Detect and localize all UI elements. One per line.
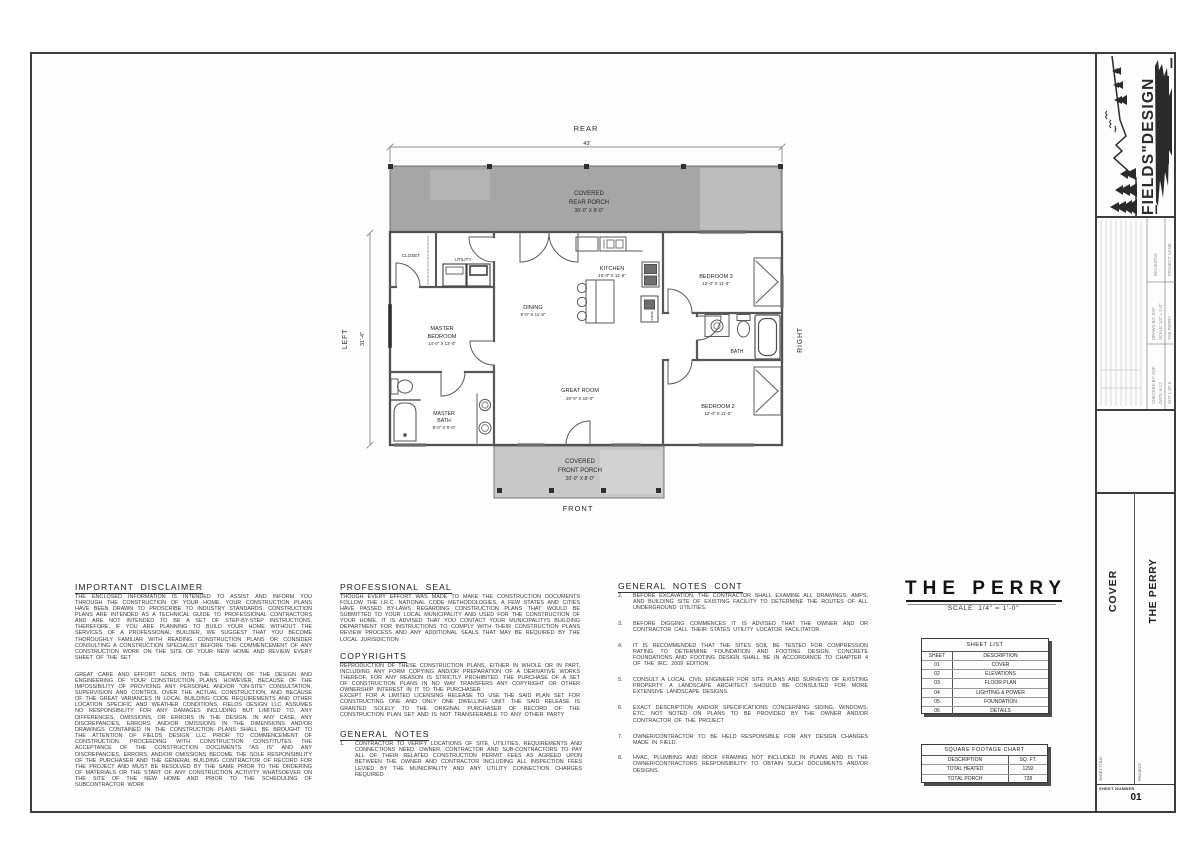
svg-text:SCALE: 1/4" = 1'-0": SCALE: 1/4" = 1'-0" [1158,303,1163,340]
svg-text:14'-0" X 13'-0": 14'-0" X 13'-0" [428,341,456,346]
svg-text:CHECKED BY: KSF: CHECKED BY: KSF [1151,366,1156,404]
svg-text:SHT 1 OF 6: SHT 1 OF 6 [1167,381,1172,404]
svg-text:REVISIONS: REVISIONS [1153,253,1158,276]
svg-text:BEDROOM: BEDROOM [428,334,457,340]
svg-text:BEDROOM 3: BEDROOM 3 [699,274,733,280]
svg-text:FIELDS"DESIGN: FIELDS"DESIGN [1140,78,1157,216]
svg-text:36'-0" X 8'-0": 36'-0" X 8'-0" [575,208,604,214]
svg-text:FRONT: FRONT [563,504,594,513]
svg-text:CLOSET: CLOSET [402,253,421,258]
svg-text:UTILITY: UTILITY [454,257,471,262]
svg-text:COVERED: COVERED [574,191,604,197]
svg-text:COVERED: COVERED [565,459,595,465]
svg-text:PROJECT NAME: PROJECT NAME [1167,243,1172,276]
svg-text:REAR: REAR [574,124,599,133]
svg-text:31'-4": 31'-4" [360,332,366,346]
svg-text:LEFT: LEFT [342,329,349,349]
svg-text:GREAT ROOM: GREAT ROOM [561,388,599,394]
svg-text:12'-0" X 11'-0": 12'-0" X 11'-0" [704,411,732,416]
svg-text:DRAWN BY: KSF: DRAWN BY: KSF [1151,307,1156,340]
svg-text:9'-0" X 11'-6": 9'-0" X 11'-6" [521,312,546,317]
svg-text:12'-0" X 11'-0": 12'-0" X 11'-0" [702,281,730,286]
svg-text:43': 43' [583,141,590,147]
svg-text:RIGHT: RIGHT [797,327,804,353]
svg-text:THE PERRY: THE PERRY [1167,316,1172,340]
svg-text:BATH: BATH [437,418,451,424]
svg-text:FRONT PORCH: FRONT PORCH [558,468,602,474]
svg-text:20'-0" X 8'-0": 20'-0" X 8'-0" [566,476,595,482]
svg-text:BATH: BATH [731,349,744,355]
svg-text:20'-0" X 15'-0": 20'-0" X 15'-0" [566,396,594,401]
svg-text:DATE: 6-12: DATE: 6-12 [1158,382,1163,404]
svg-text:BEDROOM 2: BEDROOM 2 [701,404,735,410]
svg-text:10'-0" X 11'-6": 10'-0" X 11'-6" [598,273,626,278]
svg-text:MASTER: MASTER [430,326,453,332]
svg-text:MASTER: MASTER [433,411,455,417]
svg-text:8'-0" X 8'-0": 8'-0" X 8'-0" [433,425,456,430]
svg-text:DINING: DINING [523,305,543,311]
svg-text:KITCHEN: KITCHEN [600,266,625,272]
svg-text:REAR PORCH: REAR PORCH [569,200,609,206]
